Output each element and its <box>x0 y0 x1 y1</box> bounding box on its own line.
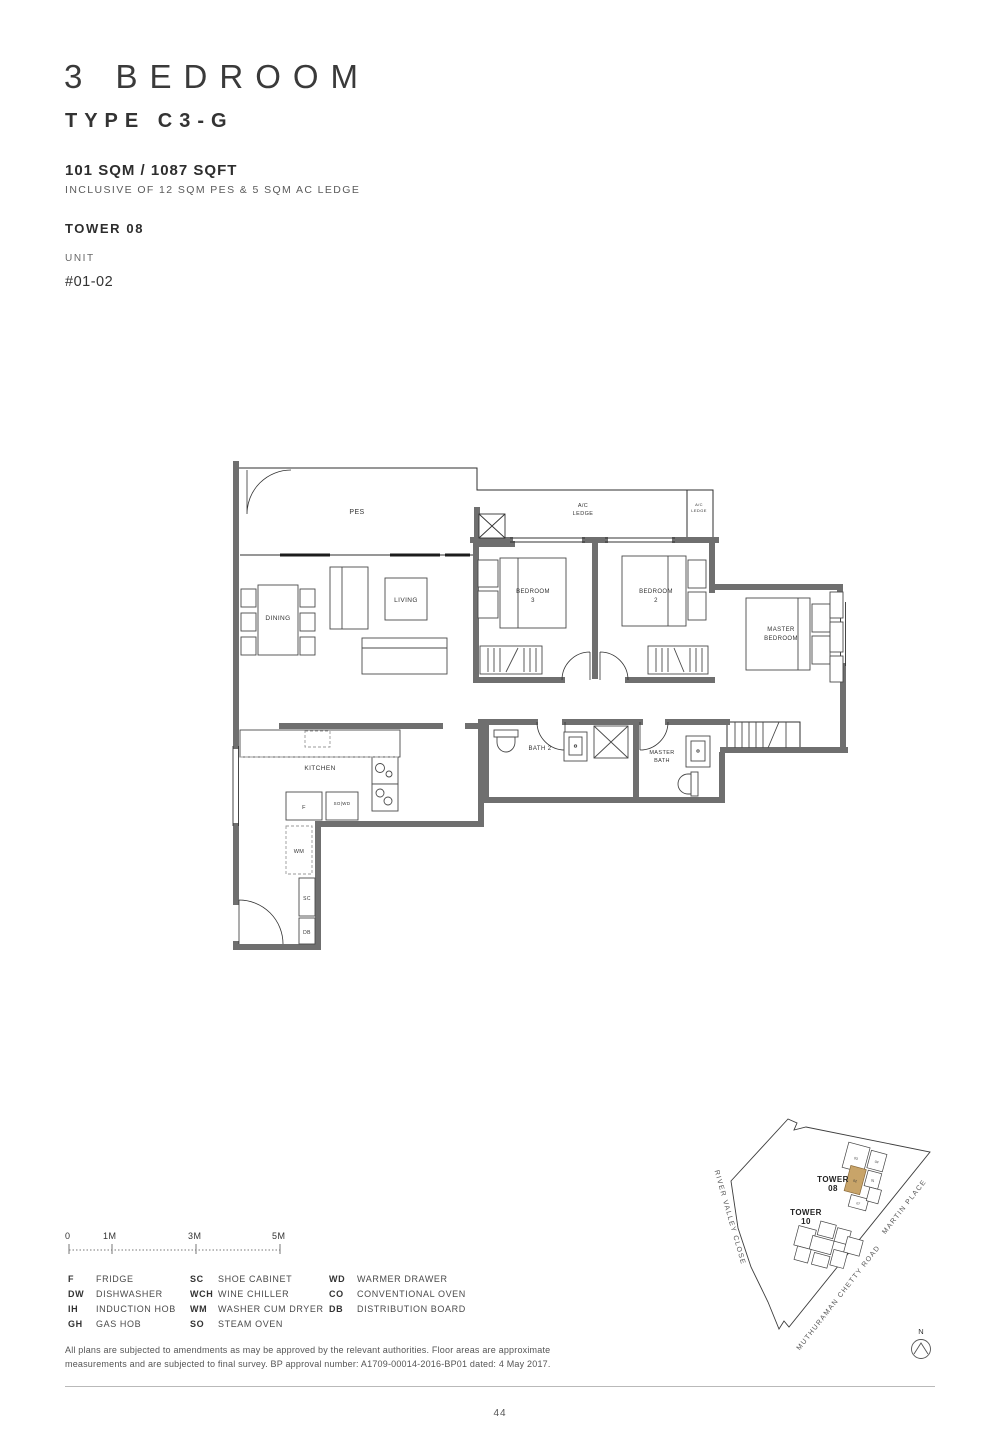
label-wm: WM <box>294 849 305 855</box>
floor-plan: PES A/C LEDGE A/C LEDGE DINING LIVING BE… <box>220 450 868 965</box>
unit-label: UNIT <box>65 253 95 264</box>
legend-column-1: FFRIDGE DWDISHWASHER IHINDUCTION HOB GHG… <box>68 1272 190 1332</box>
bath2-fixtures <box>494 726 628 761</box>
legend-item: GHGAS HOB <box>68 1317 190 1332</box>
label-so-wd: SO|WD <box>334 801 351 806</box>
scale-bar: 0 1M 3M 5M <box>60 1228 290 1262</box>
site-map: 03 04 01 02 07 TOWER 08 TOWER 10 RIVER V… <box>690 1080 980 1370</box>
sofa <box>330 567 447 674</box>
street-river-valley-close: RIVER VALLEY CLOSE <box>713 1169 747 1265</box>
svg-text:BEDROOM: BEDROOM <box>764 636 798 642</box>
svg-text:BATH: BATH <box>654 758 670 764</box>
wardrobe-master <box>735 722 786 748</box>
page-title: 3 BEDROOM <box>64 58 370 96</box>
walls <box>236 464 845 947</box>
label-master-bedroom: MASTER <box>767 627 795 633</box>
north-label: N <box>918 1327 923 1336</box>
tower08-label: TOWER <box>817 1175 849 1184</box>
legend-item: COCONVENTIONAL OVEN <box>329 1287 499 1302</box>
svg-text:LEDGE: LEDGE <box>691 508 707 513</box>
scale-0: 0 <box>65 1231 71 1241</box>
wardrobe-bedroom3 <box>480 646 542 674</box>
kitchen-counter <box>240 730 400 820</box>
disclaimer-line2: measurements and are subjected to final … <box>65 1358 551 1372</box>
label-ac-ledge-small: A/C <box>695 502 703 507</box>
legend-item: WCHWINE CHILLER <box>190 1287 329 1302</box>
unit-number: #01-02 <box>65 274 113 290</box>
tower-label: TOWER 08 <box>65 221 144 236</box>
label-db: DB <box>303 930 311 936</box>
label-pes: PES <box>349 509 364 516</box>
legend-item: WDWARMER DRAWER <box>329 1272 499 1287</box>
svg-text:3: 3 <box>531 598 535 604</box>
ac-unit-icon <box>479 514 505 538</box>
legend-item: DBDISTRIBUTION BOARD <box>329 1302 499 1317</box>
scale-1m: 1M <box>103 1231 117 1241</box>
legend-column-2: SCSHOE CABINET WCHWINE CHILLER WMWASHER … <box>190 1272 329 1332</box>
label-living: LIVING <box>394 597 418 604</box>
label-bedroom3: BEDROOM <box>516 589 550 595</box>
disclaimer-line1: All plans are subjected to amendments as… <box>65 1344 551 1358</box>
north-indicator: N <box>912 1327 931 1359</box>
svg-text:LEDGE: LEDGE <box>573 511 594 517</box>
label-bedroom2: BEDROOM <box>639 589 673 595</box>
legend-item: DWDISHWASHER <box>68 1287 190 1302</box>
legend-item: SCSHOE CABINET <box>190 1272 329 1287</box>
svg-text:2: 2 <box>654 598 658 604</box>
label-fridge: F <box>302 805 306 811</box>
disclaimer: All plans are subjected to amendments as… <box>65 1344 551 1371</box>
legend-item: IHINDUCTION HOB <box>68 1302 190 1317</box>
svg-text:08: 08 <box>828 1184 838 1193</box>
label-master-bath: MASTER <box>649 750 674 756</box>
legend-item: WMWASHER CUM DRYER <box>190 1302 329 1317</box>
wardrobe-bedroom2 <box>648 646 708 674</box>
footer-divider <box>65 1386 935 1387</box>
label-bath2: BATH 2 <box>529 746 552 752</box>
scale-5m: 5M <box>272 1231 286 1241</box>
label-sc: SC <box>303 896 311 902</box>
brochure-page: { "header": { "title": "3 BEDROOM", "typ… <box>0 0 1000 1454</box>
legend-item: SOSTEAM OVEN <box>190 1317 329 1332</box>
master-bath-fixtures <box>678 736 710 796</box>
label-dining: DINING <box>265 615 290 622</box>
street-martin-place: MARTIN PLACE <box>881 1178 928 1235</box>
unit-type-subtitle: TYPE C3-G <box>65 110 234 133</box>
north-arrow-icon <box>914 1343 928 1354</box>
label-kitchen: KITCHEN <box>304 765 335 772</box>
tower10-label: TOWER <box>790 1208 822 1217</box>
area-size: 101 SQM / 1087 SQFT <box>65 162 237 179</box>
area-note: INCLUSIVE OF 12 SQM PES & 5 SQM AC LEDGE <box>65 184 360 196</box>
label-ac-ledge: A/C <box>578 503 588 509</box>
svg-text:10: 10 <box>801 1217 811 1226</box>
scale-3m: 3M <box>188 1231 202 1241</box>
legend-column-3: WDWARMER DRAWER COCONVENTIONAL OVEN DBDI… <box>329 1272 499 1317</box>
page-number: 44 <box>0 1408 1000 1419</box>
legend-item: FFRIDGE <box>68 1272 190 1287</box>
